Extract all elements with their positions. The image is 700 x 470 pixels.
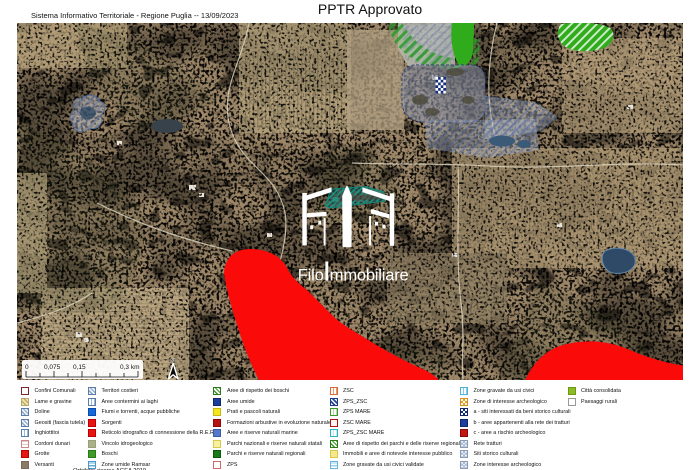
svg-text:0: 0 bbox=[25, 364, 29, 371]
svg-text:0,15: 0,15 bbox=[73, 364, 86, 371]
svg-text:0,075: 0,075 bbox=[44, 364, 61, 371]
svg-text:N: N bbox=[170, 358, 175, 365]
svg-text:mmobiliare: mmobiliare bbox=[330, 267, 409, 285]
svg-text:0,3 km: 0,3 km bbox=[120, 364, 140, 371]
svg-text:Filo: Filo bbox=[298, 267, 324, 285]
